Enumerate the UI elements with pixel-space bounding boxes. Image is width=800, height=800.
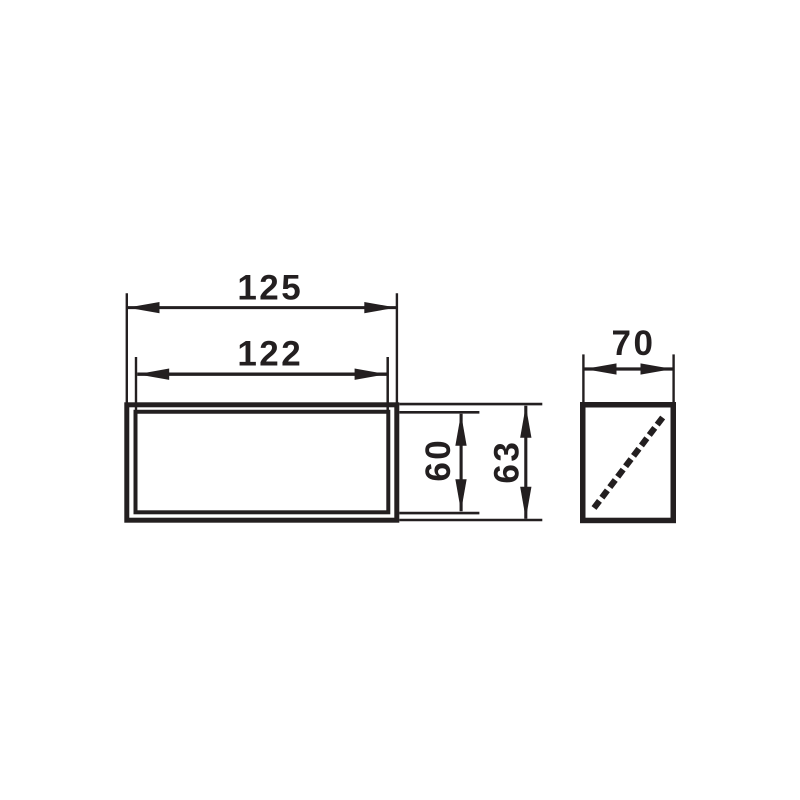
svg-text:125: 125 [237, 269, 303, 308]
svg-text:70: 70 [612, 324, 656, 363]
svg-text:63: 63 [488, 440, 527, 484]
svg-text:60: 60 [419, 438, 458, 482]
svg-text:122: 122 [237, 335, 303, 374]
